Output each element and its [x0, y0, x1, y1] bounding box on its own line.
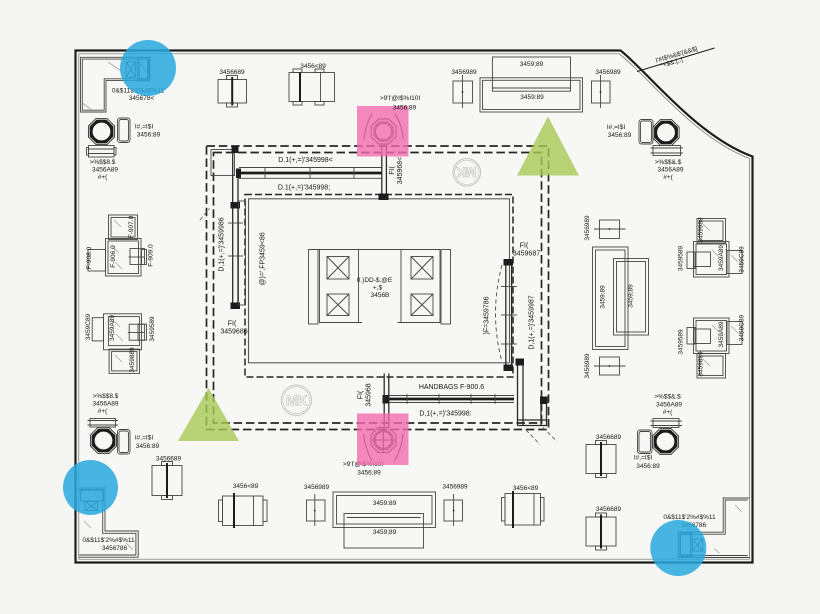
- svg-text:I#,=I$I: I#,=I$I: [607, 124, 625, 131]
- svg-text:0&$11$'2%#$%11: 0&$11$'2%#$%11: [82, 537, 135, 544]
- svg-text:3456<89: 3456<89: [233, 483, 259, 490]
- svg-text:#+(: #+(: [663, 409, 673, 416]
- svg-text:3456B: 3456B: [371, 292, 390, 299]
- svg-text:D,1(+,=)'345998:: D,1(+,=)'345998:: [419, 411, 471, 418]
- svg-text:@)=',FP3459<86: @)=',FP3459<86: [260, 232, 267, 285]
- svg-text:3459A89: 3459A89: [109, 315, 116, 341]
- svg-text:F-907.0: F-907.0: [128, 215, 135, 238]
- svg-text:FI(: FI(: [228, 321, 237, 328]
- svg-text:3456;89: 3456;89: [357, 470, 381, 477]
- svg-text:HANDBAGS F-900.6: HANDBAGS F-900.6: [419, 384, 484, 391]
- svg-text:>9'I'@I$%I10I: >9'I'@I$%I10I: [380, 95, 421, 102]
- svg-text:#+(: #+(: [663, 174, 673, 181]
- svg-text:I#,=I$I: I#,=I$I: [135, 124, 153, 131]
- svg-text:3456989: 3456989: [595, 69, 621, 76]
- svg-text:F-906.0: F-906.0: [110, 245, 117, 268]
- svg-text:3459C89: 3459C89: [739, 314, 746, 341]
- svg-text:3459A89: 3459A89: [718, 321, 725, 347]
- svg-text:D,1(+,=)'3459986: D,1(+,=)'3459986: [219, 217, 226, 271]
- svg-text:)F=3459786: )F=3459786: [484, 296, 491, 334]
- svg-text:3456:89: 3456:89: [608, 132, 632, 139]
- svg-text:>%$$&.$: >%$$&.$: [654, 394, 681, 401]
- svg-text:3456:89: 3456:89: [393, 105, 417, 112]
- svg-text:+,$: +,$: [373, 285, 383, 292]
- svg-text:3456A89: 3456A89: [656, 402, 682, 409]
- svg-text:>%$$&.$: >%$$&.$: [655, 159, 682, 166]
- svg-text:I#,=I$I: I#,=I$I: [135, 435, 153, 442]
- svg-text:3459:89: 3459:89: [520, 94, 544, 101]
- svg-text:345678<: 345678<: [129, 95, 155, 102]
- svg-text:MK: MK: [456, 164, 476, 179]
- svg-text:3456989: 3456989: [304, 484, 330, 491]
- svg-text:3456:89: 3456:89: [636, 463, 660, 470]
- svg-text:345968: 345968: [366, 383, 373, 406]
- svg-text:FI(: FI(: [358, 390, 365, 399]
- svg-text:3456A89: 3456A89: [657, 167, 683, 174]
- svg-text:#+(: #+(: [98, 408, 108, 415]
- svg-text:3459686: 3459686: [220, 329, 247, 336]
- svg-text:3456989: 3456989: [584, 353, 591, 379]
- svg-text:3459A89: 3459A89: [718, 245, 725, 271]
- svg-text:3459889: 3459889: [698, 351, 705, 377]
- svg-text:D,1(+,=)'3459987: D,1(+,=)'3459987: [529, 295, 536, 349]
- svg-text:3459989: 3459989: [698, 217, 705, 243]
- svg-text:3459;89: 3459;89: [600, 285, 607, 309]
- svg-text:3459589: 3459589: [678, 245, 685, 271]
- svg-text:I#,=I$I: I#,=I$I: [634, 455, 652, 462]
- svg-text:D.1(+,=)'345998<: D.1(+,=)'345998<: [278, 157, 332, 164]
- svg-text:3456:89: 3456:89: [137, 132, 161, 139]
- svg-text:3456A89: 3456A89: [92, 167, 118, 174]
- svg-text:3459889: 3459889: [129, 347, 136, 373]
- svg-text:MK: MK: [286, 393, 308, 409]
- svg-text:3456689: 3456689: [219, 69, 245, 76]
- svg-text:#+(: #+(: [98, 174, 108, 181]
- svg-text:3459;89: 3459;89: [520, 61, 544, 68]
- svg-text:FI(: FI(: [520, 243, 529, 250]
- svg-text:3456689: 3456689: [596, 434, 622, 441]
- svg-text:3459589: 3459589: [678, 329, 685, 355]
- svg-text:3456:89: 3456:89: [136, 443, 160, 450]
- svg-text:3459687: 3459687: [513, 251, 540, 258]
- svg-text:3456989: 3456989: [584, 215, 591, 241]
- svg-text:3459C89: 3459C89: [739, 246, 746, 273]
- svg-text:>%$$8.$: >%$$8.$: [90, 159, 116, 166]
- svg-text:3456<89: 3456<89: [513, 485, 539, 492]
- svg-text:3456786: 3456786: [102, 545, 128, 552]
- svg-text:3456689: 3456689: [596, 506, 622, 513]
- svg-text:0&$11$'2%#$%11: 0&$11$'2%#$%11: [663, 514, 716, 521]
- svg-text:3459;89: 3459;89: [373, 529, 397, 536]
- svg-text:3456A89: 3456A89: [92, 401, 118, 408]
- svg-text:F-909.0: F-909.0: [148, 244, 155, 267]
- svg-text:F-908.0: F-908.0: [86, 246, 93, 269]
- svg-text:3456989: 3456989: [451, 69, 477, 76]
- svg-text:345968<: 345968<: [397, 157, 404, 184]
- svg-text:3459589: 3459589: [149, 316, 156, 342]
- svg-text:3459;89: 3459;89: [628, 284, 635, 308]
- svg-text:FI(: FI(: [389, 166, 396, 175]
- svg-text:D.1(+,=)'345998;: D.1(+,=)'345998;: [278, 185, 330, 192]
- svg-text:3456989: 3456989: [442, 484, 468, 491]
- svg-text:3459:89: 3459:89: [373, 500, 397, 507]
- svg-text:3459C89: 3459C89: [85, 313, 92, 340]
- svg-text:0.)DD-$,@E: 0.)DD-$,@E: [357, 277, 393, 284]
- svg-text:>%$$8.$: >%$$8.$: [93, 393, 119, 400]
